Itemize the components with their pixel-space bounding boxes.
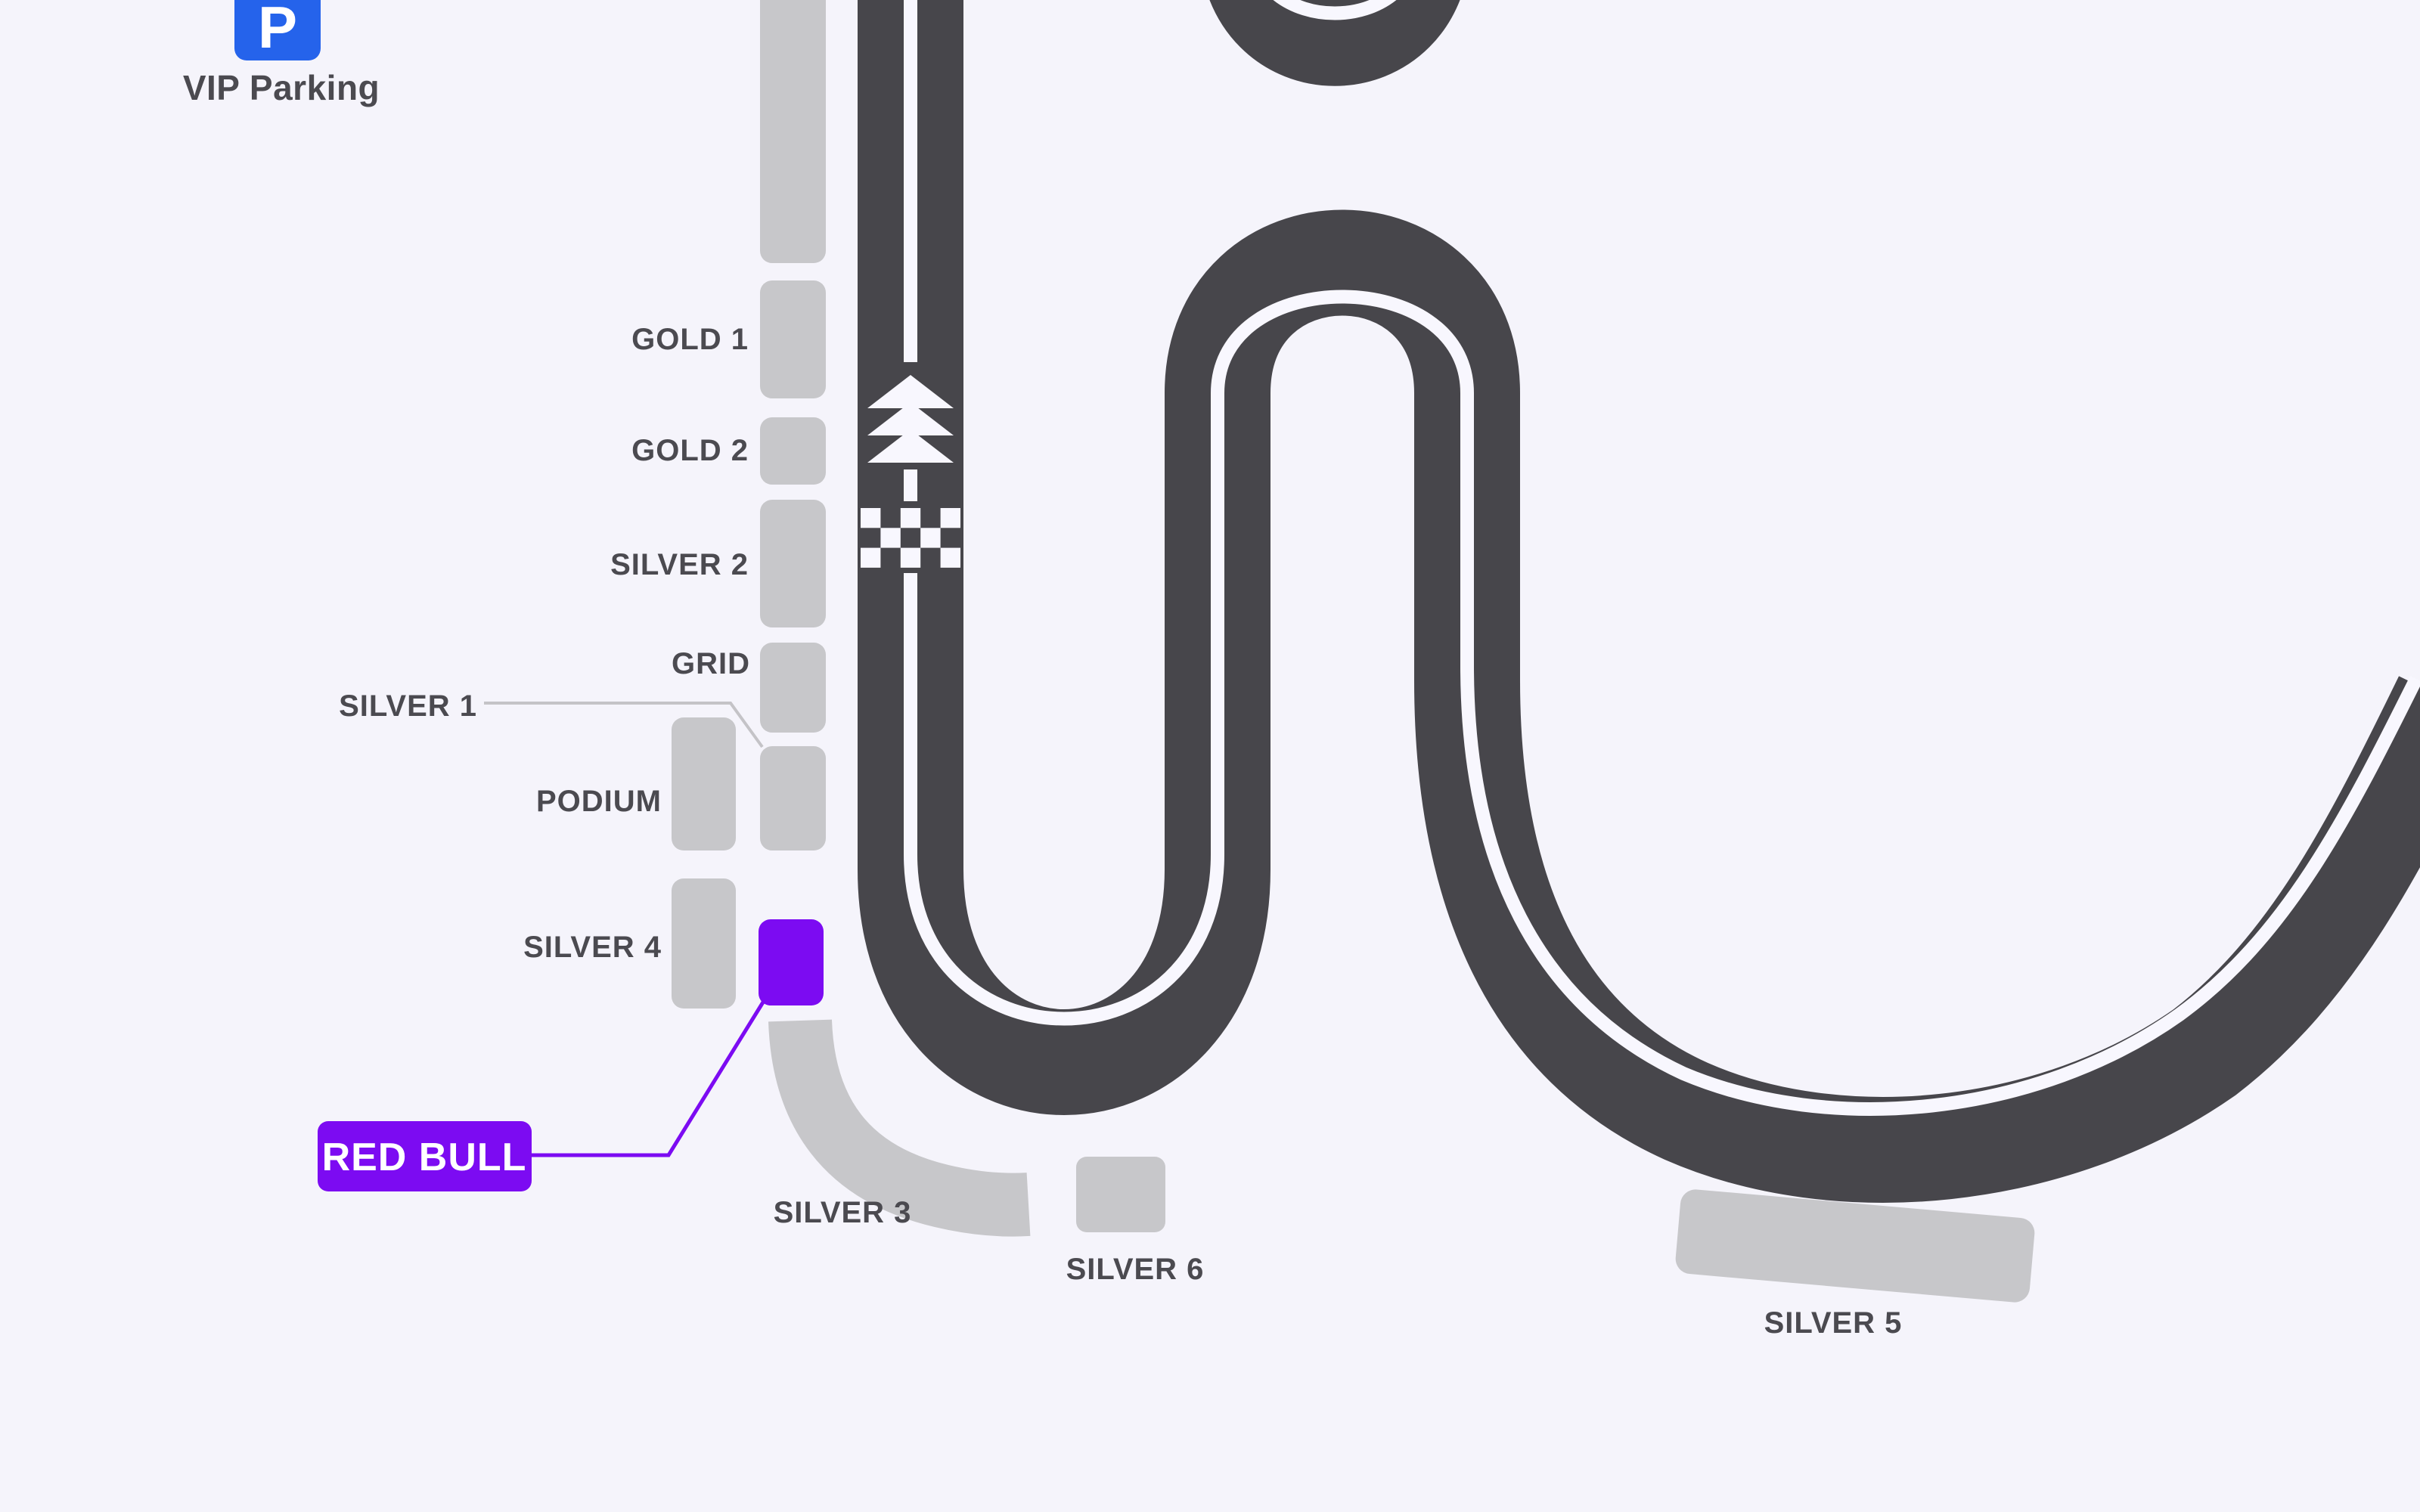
stand-silver-2[interactable] <box>760 500 826 627</box>
label-silver-5: SILVER 5 <box>1764 1306 1903 1340</box>
vip-parking-label: VIP Parking <box>183 68 380 107</box>
label-silver-6: SILVER 6 <box>1066 1253 1205 1286</box>
label-gold-1: GOLD 1 <box>631 323 749 356</box>
stand-gold-1[interactable] <box>760 280 826 398</box>
red-bull-leader-line <box>529 1001 764 1155</box>
circuit-map: GOLD 1 GOLD 2 SILVER 2 GRID SILVER 1 POD… <box>0 0 2420 1512</box>
stand-red-bull-highlighted[interactable] <box>759 919 824 1005</box>
stand-gold-2[interactable] <box>760 417 826 485</box>
race-track <box>861 0 2420 1150</box>
stand-silver-1[interactable] <box>760 746 826 850</box>
label-silver-4: SILVER 4 <box>523 931 662 964</box>
stand-silver-5[interactable] <box>1674 1188 2036 1304</box>
center-dash <box>904 469 917 501</box>
vip-parking: P VIP Parking <box>183 0 380 107</box>
label-silver-1: SILVER 1 <box>339 689 477 723</box>
red-bull-badge-label: RED BULL <box>322 1136 527 1179</box>
stand-main-straight-upper[interactable] <box>760 0 826 263</box>
red-bull-badge[interactable]: RED BULL <box>318 1121 532 1191</box>
parking-icon-letter: P <box>258 0 297 60</box>
label-gold-2: GOLD 2 <box>631 434 749 467</box>
stand-podium[interactable] <box>672 717 736 850</box>
label-grid: GRID <box>672 647 750 680</box>
label-silver-3: SILVER 3 <box>774 1196 912 1229</box>
label-silver-2: SILVER 2 <box>610 548 749 581</box>
stand-silver-6[interactable] <box>1076 1157 1165 1232</box>
stand-silver-4[interactable] <box>672 878 736 1009</box>
label-podium: PODIUM <box>536 785 662 818</box>
stand-grid[interactable] <box>760 643 826 733</box>
track-main-loop <box>911 0 2420 1150</box>
